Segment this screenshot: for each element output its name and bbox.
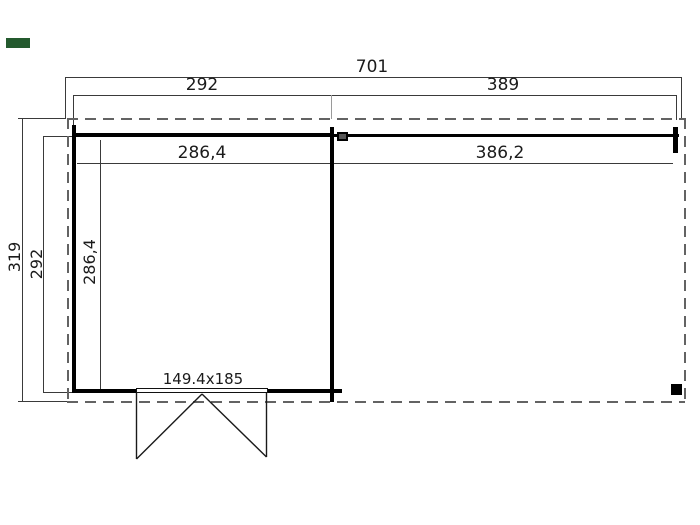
- extension-line-total-depth-bottom: [18, 401, 68, 402]
- extension-line-canopy-width-right: [676, 95, 677, 120]
- roof-outline-dashed-top: [67, 118, 685, 120]
- label-cabin-width: 292: [162, 76, 242, 94]
- extension-line-total-depth-top: [18, 118, 65, 119]
- canopy-beam-top: [334, 134, 679, 137]
- extension-line-total-width-right: [681, 77, 682, 120]
- cabin-wall-top: [72, 133, 334, 137]
- canopy-post-bottom-right: [671, 384, 682, 395]
- label-cabin-depth: 292: [28, 234, 46, 294]
- cabin-wall-left: [72, 125, 76, 393]
- dim-line-cabin-canopy-width: [73, 95, 676, 96]
- label-total-depth: 319: [6, 227, 24, 287]
- cabin-wall-bottom-right-of-door: [267, 389, 342, 393]
- beam-connector-block: [337, 132, 348, 141]
- extension-line-total-width-left: [65, 77, 66, 119]
- extension-line-cabin-canopy-divider: [331, 95, 332, 119]
- roof-outline-dashed-left: [67, 118, 69, 402]
- label-cabin-inner-width: 286,4: [157, 144, 247, 162]
- door-leaf-left-swing: [137, 394, 203, 459]
- canopy-post-top-right: [673, 127, 678, 153]
- label-canopy-width: 389: [463, 76, 543, 94]
- door-leaf-right-swing: [202, 394, 267, 457]
- dim-line-cabin-inner-depth: [100, 140, 101, 389]
- extension-line-cabin-width-left: [73, 95, 74, 126]
- label-cabin-inner-depth: 286,4: [81, 232, 99, 292]
- label-canopy-inner-width: 386,2: [455, 144, 545, 162]
- dim-line-total-width: [65, 77, 681, 78]
- cabin-wall-center: [330, 127, 334, 402]
- dim-line-inner-widths: [77, 163, 673, 164]
- door-leaves-drawing: [135, 392, 270, 462]
- roof-outline-dashed-right: [684, 118, 686, 403]
- cabin-wall-bottom-left-of-door: [72, 389, 137, 393]
- floor-plan-canvas: 701 292 389 319 292 286,4 286,4 386,2 14…: [0, 0, 700, 525]
- label-door-size: 149.4x185: [143, 370, 263, 388]
- label-total-width: 701: [332, 58, 412, 76]
- brand-marker: [6, 38, 30, 48]
